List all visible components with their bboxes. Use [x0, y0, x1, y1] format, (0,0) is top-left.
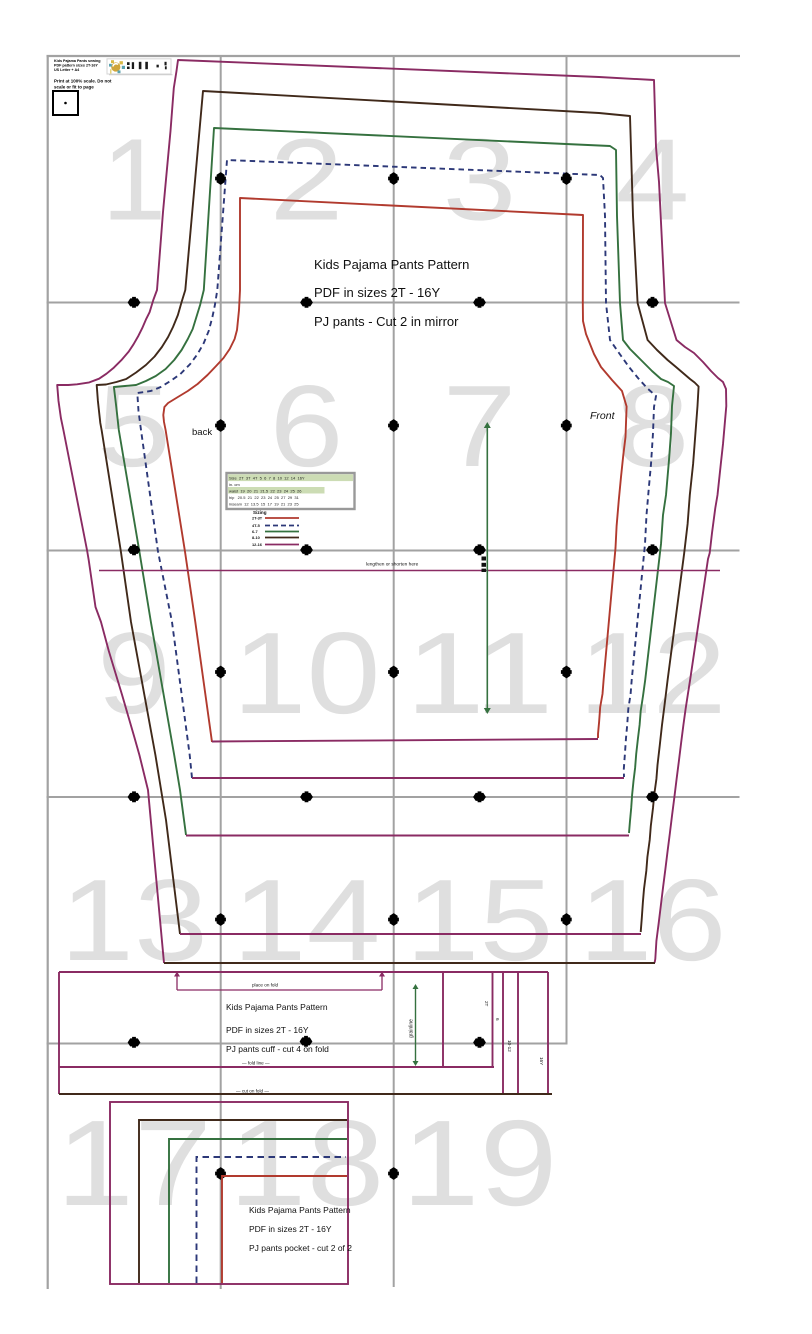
svg-text:PDF pattern sizes 2T-16Y: PDF pattern sizes 2T-16Y [54, 63, 98, 67]
svg-text:12: 12 [579, 608, 727, 738]
svg-text:Sizing: Sizing [253, 510, 267, 515]
svg-text:10-12: 10-12 [507, 1040, 512, 1052]
svg-text:2T: 2T [484, 1001, 489, 1007]
svg-text:14: 14 [233, 855, 381, 985]
svg-text:16Y: 16Y [539, 1057, 544, 1065]
svg-text:6: 6 [495, 1018, 500, 1021]
svg-text:12-16: 12-16 [252, 542, 263, 547]
svg-text:16: 16 [579, 855, 727, 985]
svg-text:PJ pants - Cut 2 in mirror: PJ pants - Cut 2 in mirror [314, 314, 459, 329]
svg-text:inseam 12 13.5 15 17 19: inseam 12 13.5 15 17 19 21 23 25 [229, 502, 299, 507]
svg-text:lengthen or shorten here: lengthen or shorten here [366, 562, 419, 568]
svg-text:Kids Pajama Pants sewing: Kids Pajama Pants sewing [54, 59, 101, 63]
svg-text:2T-3T: 2T-3T [252, 516, 263, 521]
svg-text:hip 20.5 21 22 23 24 25: hip 20.5 21 22 23 24 25 27 29 31 [229, 495, 300, 500]
svg-text:4: 4 [616, 115, 690, 245]
svg-text:Kids Pajama Pants Pattern: Kids Pajama Pants Pattern [314, 257, 469, 272]
svg-text:3: 3 [443, 115, 517, 245]
svg-text:11: 11 [406, 608, 554, 738]
svg-text:15: 15 [406, 855, 554, 985]
svg-text:Kids Pajama Pants Pattern: Kids Pajama Pants Pattern [226, 1002, 328, 1012]
svg-text:— cut on fold —: — cut on fold — [236, 1089, 269, 1094]
svg-text:19: 19 [402, 1095, 558, 1231]
svg-text:6-7: 6-7 [252, 529, 258, 534]
svg-text:8-10: 8-10 [252, 535, 260, 540]
svg-text:PDF in sizes 2T - 16Y: PDF in sizes 2T - 16Y [249, 1224, 332, 1234]
svg-text:Print at 100% scale. Do not: Print at 100% scale. Do not [54, 79, 112, 84]
svg-text:7: 7 [443, 361, 517, 491]
svg-text:US Letter + A4: US Letter + A4 [54, 68, 80, 72]
svg-text:Front: Front [590, 410, 616, 422]
svg-text:grainline: grainline [409, 1019, 415, 1038]
svg-text:PDF in sizes 2T - 16Y: PDF in sizes 2T - 16Y [314, 285, 441, 300]
svg-text:Size 2T 3T 4T 5 6 7 8: Size 2T 3T 4T 5 6 7 8 10 12 14 16Y [229, 476, 305, 481]
svg-text:waist 19 20 21 21.5 22 2: waist 19 20 21 21.5 22 23 24 25 26 [229, 488, 302, 493]
svg-text:10: 10 [233, 608, 381, 738]
svg-text:— fold line —: — fold line — [242, 1061, 270, 1066]
svg-text:Kids Pajama Pants Pattern: Kids Pajama Pants Pattern [249, 1205, 351, 1215]
svg-text:scale or fit to page: scale or fit to page [54, 84, 94, 89]
svg-text:17: 17 [56, 1095, 212, 1231]
svg-text:1: 1 [102, 115, 167, 245]
svg-text:4T-5: 4T-5 [252, 523, 261, 528]
svg-text:6: 6 [270, 361, 344, 491]
svg-text:back: back [192, 427, 212, 438]
svg-text:PDF in sizes 2T - 16Y: PDF in sizes 2T - 16Y [226, 1025, 309, 1035]
svg-text:in. cm: in. cm [229, 482, 240, 487]
svg-text:13: 13 [60, 855, 208, 985]
svg-text:PJ pants pocket - cut 2 of 2: PJ pants pocket - cut 2 of 2 [249, 1243, 352, 1253]
svg-text:place on fold: place on fold [252, 983, 278, 988]
svg-text:PJ pants cuff - cut 4 on fold: PJ pants cuff - cut 4 on fold [226, 1044, 329, 1054]
